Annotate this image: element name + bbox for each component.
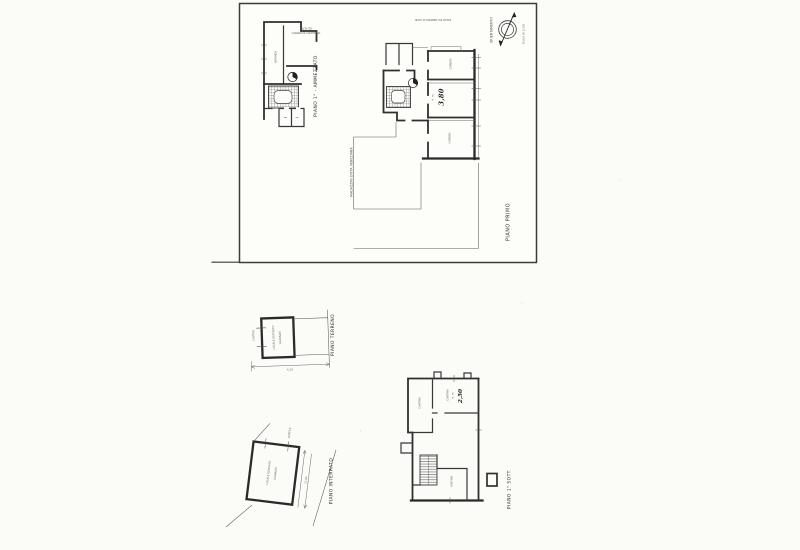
mezzanine-title: PIANO 1° - AMMEZZATO (313, 55, 319, 117)
bs-courtyard-label: CORTILE (287, 427, 292, 439)
plan-drawing: ORIENTAMENTO SCALA DI 1:200 VERANDA TERR… (0, 0, 800, 550)
cl-outer-walls-left-top (408, 379, 479, 501)
bs-room-label-line2: (GARAGE) (273, 467, 279, 480)
mezzanine-door-gap (284, 107, 289, 110)
cl-room-right-height-label: h. m. (451, 392, 455, 399)
basement-title: PIANO INTERRATO (329, 458, 335, 505)
cl-lightwell-square (487, 474, 497, 487)
ground-floor-plan: LOCALE DEPOSITO (GARAGE) CORTILE 6.10 PI… (250, 310, 336, 373)
bs-room-walls (247, 442, 300, 505)
gf-room-walls (261, 317, 294, 358)
bs-corner-line (254, 422, 270, 444)
gf-room-label-line1: LOCALE DEPOSITO (271, 325, 276, 349)
ground-floor-geometry: LOCALE DEPOSITO (GARAGE) CORTILE 6.10 (250, 310, 330, 373)
scale-label: SCALA DI 1:200 (522, 23, 526, 44)
mezzanine-note-line1: TERRAZZO SCOPERTO (292, 31, 321, 35)
first-floor-title: PIANO PRIMO (506, 203, 512, 241)
bs-room-label-line1: LOCALE DEPOSITO (265, 460, 272, 484)
cl-room-right-height-value: 2,50 (458, 389, 464, 404)
cl-room-right-label: CANTINA (446, 389, 450, 401)
ff-boundary-note: SALVO ED ANNESSI DI ALTRI (415, 18, 452, 22)
basement-geometry: LOCALE DEPOSITO (GARAGE) CORTILE 12.04 (246, 422, 316, 509)
ff-room-a-label: CAMERA (449, 58, 453, 69)
orientation-label: ORIENTAMENTO (490, 16, 494, 43)
mezzanine-stair-well (274, 91, 292, 104)
cellar-plan: CANTINA CANTINA h. m. 2,50 CANTINA PIANO… (401, 372, 513, 509)
gf-boundary-lines (293, 310, 330, 369)
bs-dimension-value: 12.04 (303, 476, 308, 484)
cl-room-bottom-label: CANTINA (450, 475, 454, 487)
ff-stair-well (392, 91, 406, 104)
gf-dimension-value: 6.10 (287, 367, 293, 371)
ff-courtyard-note: MAGAZZINI DITTA VENEZIANA (350, 147, 354, 197)
ff-room-b-height-label: h. m. (431, 94, 435, 101)
mezzanine-door-gap-2 (296, 107, 301, 110)
ff-room-c-label: CAMERA (448, 132, 452, 143)
cellar-title: PIANO 1° SOTT. (507, 469, 513, 509)
basement-plan: LOCALE DEPOSITO (GARAGE) CORTILE 12.04 P… (226, 422, 336, 527)
cl-inner-walls (413, 379, 479, 433)
ground-floor-title: PIANO TERRENO (330, 314, 336, 356)
mezzanine-note-line2: ED ALTRI (300, 27, 312, 31)
cl-left-protrusion (401, 443, 413, 453)
scanned-cadastral-plan-page: ORIENTAMENTO SCALA DI 1:200 VERANDA TERR… (0, 0, 800, 550)
cl-window-ticks (450, 375, 482, 504)
bs-stray-boundary-lines (226, 450, 336, 527)
ff-boundary-note-group: SALVO ED ANNESSI DI ALTRI (415, 18, 452, 22)
cl-room-left-label: CANTINA (418, 397, 422, 409)
ff-room-b-height-value: 3,80 (438, 88, 446, 105)
gf-room-label-line2: (GARAGE) (278, 331, 282, 344)
sheet-border (212, 4, 537, 263)
gf-courtyard-label: CORTILE (251, 329, 255, 340)
cl-top-stubs (434, 372, 471, 379)
mezzanine-veranda-label: VERANDA (274, 51, 278, 64)
